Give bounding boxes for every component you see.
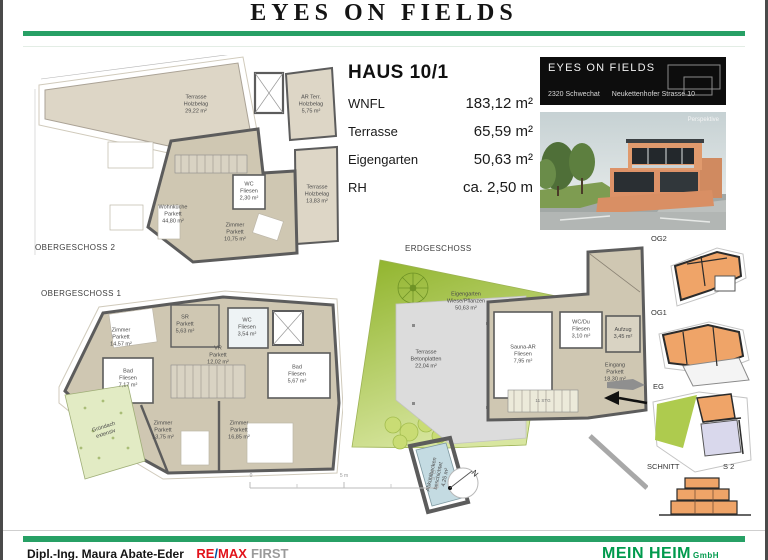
company-suffix: GmbH <box>693 551 719 560</box>
room-label-vr: VR Parkett 12,02 m² <box>207 346 229 367</box>
plan-obergeschoss-2: Terrasse Holzbelag 29,22 m² AR Terr. Hol… <box>33 55 343 270</box>
project-city: 2320 Schwechat <box>548 91 600 98</box>
brand-max: MAX <box>218 546 247 560</box>
room-label-wc-og2: WC Fliesen 2,30 m² <box>240 182 259 203</box>
scale-tick-10: 10 m <box>428 470 438 483</box>
footer-brand: RE/MAXFIRST <box>196 546 288 560</box>
info-label-terrasse: Terrasse <box>348 124 398 139</box>
footer-rule <box>23 536 745 542</box>
page-title: EYES ON FIELDS <box>3 0 765 27</box>
floorplan-og2-drawing <box>33 55 343 270</box>
north-arrow-icon: N <box>441 460 485 504</box>
info-value-wnfl: 183,12 m² <box>465 95 533 112</box>
eg-tree <box>398 273 428 303</box>
side-plan-label-schnitt: SCHNITT <box>647 462 680 471</box>
info-value-rh: ca. 2,50 m <box>463 179 533 196</box>
room-label-sauna: Sauna-AR Fliesen 7,95 m² <box>510 345 535 366</box>
plan-obergeschoss-1: OBERGESCHOSS 1 Zimmer Parkett 14,57 m² S… <box>33 283 343 483</box>
info-value-terrasse: 65,59 m² <box>474 123 533 140</box>
og1-stairs <box>171 365 245 398</box>
north-indicator: N <box>441 460 485 509</box>
header-rule <box>23 31 745 36</box>
side-plan-schnitt-thumb <box>655 474 755 518</box>
perspective-caption: Perspektive <box>688 117 719 123</box>
sheet-bottom-rule <box>3 530 765 531</box>
company-name: MEIN HEIM <box>602 545 691 560</box>
eg-street-edge <box>590 436 647 488</box>
side-plans-column: OG2 OG1 EG SCHNITT S 2 <box>643 228 765 520</box>
og2-interior <box>148 129 297 262</box>
plan-title-og1: OBERGESCHOSS 1 <box>41 289 121 298</box>
info-row: Terrasse 65,59 m² <box>348 123 533 140</box>
info-panel: HAUS 10/1 WNFL 183,12 m² Terrasse 65,59 … <box>348 62 533 196</box>
room-label-zimmer-nw: Zimmer Parkett 14,57 m² <box>110 328 132 349</box>
footer: Dipl.-Ing. Maura Abate-Eder RE/MAXFIRST … <box>27 545 745 560</box>
project-box-title: EYES ON FIELDS <box>548 62 655 74</box>
info-title: HAUS 10/1 <box>348 62 533 84</box>
side-plan-label-schnitt-nr: S 2 <box>723 462 734 471</box>
room-label-bad-west: Bad Fliesen 7,17 m² <box>119 369 138 390</box>
info-row: RH ca. 2,50 m <box>348 179 533 196</box>
info-label-eigengarten: Eigengarten <box>348 152 418 167</box>
side-plan-label-og1: OG1 <box>651 308 667 317</box>
plan-title-eg: ERDGESCHOSS <box>405 244 472 253</box>
info-label-rh: RH <box>348 180 367 195</box>
room-label-sr: SR Parkett 5,63 m² <box>176 315 195 336</box>
info-value-eigengarten: 50,63 m² <box>474 151 533 168</box>
footer-agent-name: Dipl.-Ing. Maura Abate-Eder <box>27 547 184 560</box>
info-row: Eigengarten 50,63 m² <box>348 151 533 168</box>
side-plan-label-og2: OG2 <box>651 234 667 243</box>
og2-stairs <box>175 155 247 173</box>
plan-sheet-page: EYES ON FIELDS <box>0 0 768 560</box>
scale-tick-5: 5 m <box>340 473 348 479</box>
footer-company: MEIN HEIMGmbH <box>602 545 719 560</box>
info-label-wnfl: WNFL <box>348 96 385 111</box>
room-label-terrasse-eg: Terrasse Betonplatten 22,04 m² <box>411 350 442 371</box>
room-label-zimmer-og2: Zimmer Parkett 10,75 m² <box>224 223 246 244</box>
room-label-aufzug: Aufzug 3,45 m² <box>614 327 633 341</box>
room-label-zimmer-sw: Zimmer Parkett 13,75 m² <box>152 421 174 442</box>
perspective-drawing <box>540 112 726 230</box>
room-label-wc-og1: WC Fliesen 3,54 m² <box>238 318 257 339</box>
room-label-eigengarten: Eigengarten Wiese/Pflanzen 50,63 m² <box>447 292 485 313</box>
perspective-image: Perspektive <box>540 112 726 230</box>
room-label-zimmer-so: Zimmer Parkett 16,85 m² <box>228 421 250 442</box>
room-label-bad-east: Bad Fliesen 5,67 m² <box>288 365 307 386</box>
room-label-terrasse-og2: Terrasse Holzbelag 29,22 m² <box>184 95 208 116</box>
plan-title-og2: OBERGESCHOSS 2 <box>35 243 115 252</box>
scale-bar: 0 5 m 10 m <box>248 468 443 501</box>
side-plan-og2-thumb <box>657 244 755 310</box>
side-plan-og1-thumb <box>653 318 757 388</box>
brand-re: RE <box>196 546 214 560</box>
room-label-wcdu: WC/Du Fliesen 3,10 m² <box>572 320 591 341</box>
room-label-terrasse-right: Terrasse Holzbelag 13,83 m² <box>305 185 329 206</box>
scale-tick-0: 0 <box>250 473 253 479</box>
header-rule-faint <box>23 46 745 47</box>
room-label-wohnkueche: Wohnküche Parkett 44,80 m² <box>159 205 188 226</box>
room-label-stiege: 11 STG <box>535 398 550 404</box>
room-label-ar-terr: AR Terr. Holzbelag 5,75 m² <box>299 95 323 116</box>
eg-pointer-icon <box>607 377 645 393</box>
brand-suffix: FIRST <box>251 546 289 560</box>
project-logo-icon <box>660 63 722 101</box>
project-box: EYES ON FIELDS 2320 SchwechatNeukettenho… <box>540 57 726 105</box>
info-row: WNFL 183,12 m² <box>348 95 533 112</box>
